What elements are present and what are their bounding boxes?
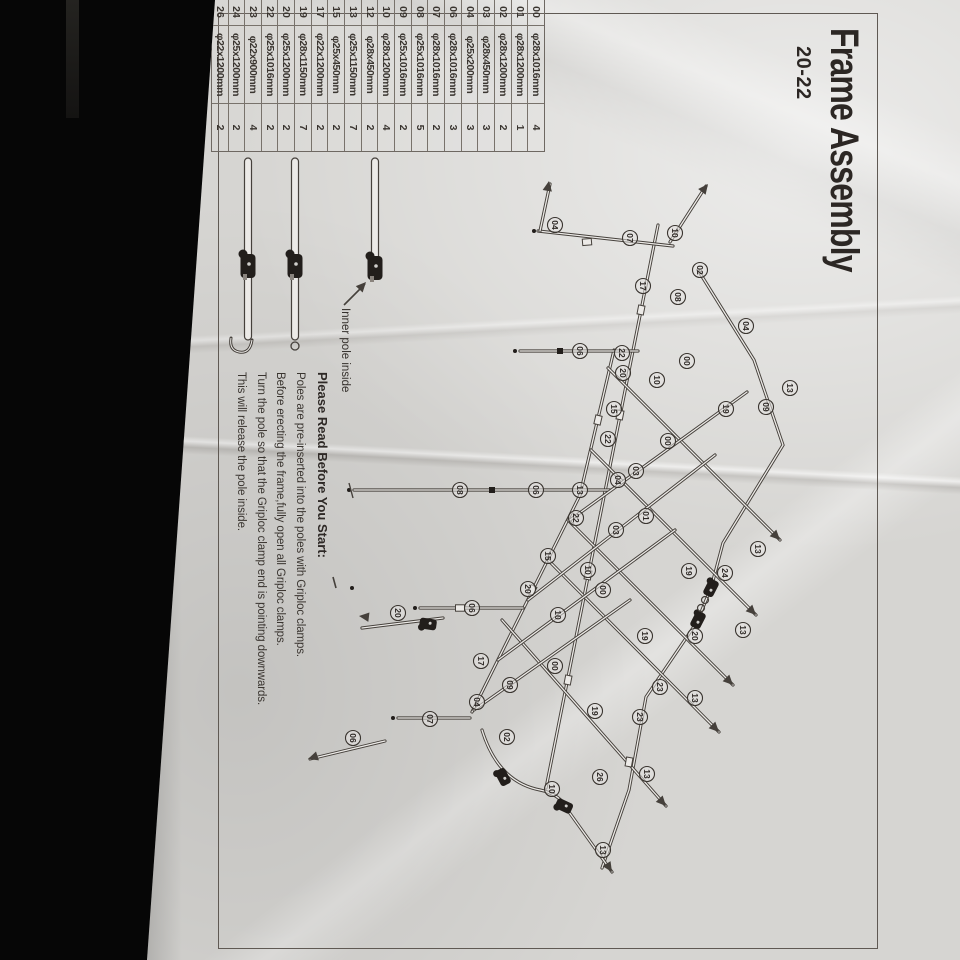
legend-pole-with-griploc-clamp-hook xyxy=(231,158,256,352)
diagram-part-label: 20 xyxy=(616,366,631,381)
diagram-part-label: 04 xyxy=(611,473,626,488)
diagram-part-label: 00 xyxy=(548,659,563,674)
diagram-part-label: 10 xyxy=(545,782,560,797)
svg-text:13: 13 xyxy=(575,485,585,495)
svg-text:01: 01 xyxy=(641,511,651,521)
inner-pole-label: Inner pole inside xyxy=(339,308,351,392)
svg-text:06: 06 xyxy=(467,603,477,613)
diagram-part-label: 13 xyxy=(640,767,655,782)
diagram-part-label: 03 xyxy=(609,523,624,538)
diagram-part-label: 08 xyxy=(453,483,468,498)
svg-text:20: 20 xyxy=(393,608,403,618)
svg-text:17: 17 xyxy=(638,281,648,291)
diagram-part-label: 10 xyxy=(581,563,596,578)
diagram-part-label: 01 xyxy=(639,509,654,524)
diagram-part-label: 22 xyxy=(601,432,616,447)
diagram-part-label: 07 xyxy=(623,231,638,246)
diagram-part-label: 06 xyxy=(465,601,480,616)
diagram-part-label: 19 xyxy=(638,629,653,644)
svg-text:07: 07 xyxy=(625,233,635,243)
diagram-part-label: 20 xyxy=(391,606,406,621)
diagram-part-label: 09 xyxy=(503,678,518,693)
diagram-part-label: 22 xyxy=(569,511,584,526)
svg-text:06: 06 xyxy=(348,733,358,743)
legend-pole-with-griploc-clamp-ring xyxy=(286,158,303,350)
svg-text:19: 19 xyxy=(640,631,650,641)
svg-text:13: 13 xyxy=(690,693,700,703)
diagram-part-label: 13 xyxy=(783,381,798,396)
diagram-part-label: 00 xyxy=(661,434,676,449)
svg-text:24: 24 xyxy=(720,568,730,578)
diagram-part-label: 02 xyxy=(500,730,515,745)
griploc-clamp-icon xyxy=(286,250,303,281)
griploc-clamp-icon xyxy=(239,250,256,281)
diagram-part-label: 10 xyxy=(650,373,665,388)
diagram-part-label: 06 xyxy=(529,483,544,498)
svg-text:13: 13 xyxy=(598,845,608,855)
svg-text:00: 00 xyxy=(550,661,560,671)
svg-text:10: 10 xyxy=(553,610,563,620)
diagram-part-label: 06 xyxy=(573,344,588,359)
svg-text:10: 10 xyxy=(583,565,593,575)
svg-text:15: 15 xyxy=(609,404,619,414)
svg-text:13: 13 xyxy=(785,383,795,393)
svg-text:04: 04 xyxy=(550,220,560,230)
diagram-part-label: 19 xyxy=(682,564,697,579)
svg-text:02: 02 xyxy=(502,732,512,742)
svg-text:06: 06 xyxy=(531,485,541,495)
diagram-part-label: 00 xyxy=(680,354,695,369)
diagram-part-label: 13 xyxy=(751,542,766,557)
diagram-part-label: 10 xyxy=(551,608,566,623)
svg-text:20: 20 xyxy=(690,631,700,641)
instruction-line: Turn the pole so that the Griploc clamp … xyxy=(255,372,267,705)
diagram-part-label: 15 xyxy=(541,549,556,564)
svg-text:22: 22 xyxy=(617,348,627,358)
diagram-part-label: 08 xyxy=(671,290,686,305)
diagram-part-label: 19 xyxy=(719,402,734,417)
diagram-part-label: 13 xyxy=(573,483,588,498)
diagram-part-label: 26 xyxy=(593,770,608,785)
svg-text:08: 08 xyxy=(455,485,465,495)
background-artifact xyxy=(66,0,79,118)
svg-text:17: 17 xyxy=(476,656,486,666)
diagram-part-label: 23 xyxy=(633,710,648,725)
diagram-part-label: 24 xyxy=(718,566,733,581)
instruction-line: This will release the pole inside. xyxy=(236,372,248,705)
diagram-part-label: 04 xyxy=(548,218,563,233)
diagram-part-label: 09 xyxy=(759,400,774,415)
svg-text:00: 00 xyxy=(682,356,692,366)
diagram-part-label: 10 xyxy=(668,226,683,241)
svg-text:10: 10 xyxy=(547,784,557,794)
diagram-part-label: 20 xyxy=(688,629,703,644)
svg-text:13: 13 xyxy=(642,769,652,779)
instruction-line: Poles are pre-inserted into the poles wi… xyxy=(294,372,306,705)
diagram-part-label: 02 xyxy=(693,263,708,278)
diagram-part-label: 06 xyxy=(346,731,361,746)
svg-text:20: 20 xyxy=(618,368,628,378)
diagram-part-label: 04 xyxy=(739,319,754,334)
svg-text:09: 09 xyxy=(505,680,515,690)
manual-page: Frame Assembly 20-22 00φ28x1016mm401φ28x… xyxy=(215,0,960,960)
svg-text:26: 26 xyxy=(595,772,605,782)
svg-text:23: 23 xyxy=(655,682,665,692)
svg-text:10: 10 xyxy=(670,228,680,238)
svg-text:04: 04 xyxy=(472,697,482,707)
svg-text:23: 23 xyxy=(635,712,645,722)
svg-text:15: 15 xyxy=(543,551,553,561)
instructions-heading: Please Read Before You Start: xyxy=(315,372,330,705)
svg-text:07: 07 xyxy=(425,714,435,724)
svg-text:08: 08 xyxy=(673,292,683,302)
manual-sheet-photo: Frame Assembly 20-22 00φ28x1016mm401φ28x… xyxy=(140,0,960,960)
diagram-part-label: 00 xyxy=(596,583,611,598)
svg-text:06: 06 xyxy=(575,346,585,356)
svg-text:19: 19 xyxy=(590,706,600,716)
svg-text:13: 13 xyxy=(753,544,763,554)
svg-text:03: 03 xyxy=(631,466,641,476)
instruction-line: Before erecting the frame,fully open all… xyxy=(275,372,287,705)
diagram-part-label: 13 xyxy=(688,691,703,706)
svg-text:19: 19 xyxy=(721,404,731,414)
svg-text:10: 10 xyxy=(652,375,662,385)
svg-text:19: 19 xyxy=(684,566,694,576)
svg-text:02: 02 xyxy=(695,265,705,275)
diagram-part-label: 22 xyxy=(615,346,630,361)
svg-text:22: 22 xyxy=(603,434,613,444)
diagram-part-label: 15 xyxy=(607,402,622,417)
diagram-part-label: 13 xyxy=(596,843,611,858)
svg-text:04: 04 xyxy=(613,475,623,485)
diagram-part-label: 03 xyxy=(629,464,644,479)
diagram-part-label: 13 xyxy=(736,623,751,638)
svg-text:13: 13 xyxy=(738,625,748,635)
diagram-part-label: 17 xyxy=(636,279,651,294)
diagram-part-label: 19 xyxy=(588,704,603,719)
diagram-part-label: 17 xyxy=(474,654,489,669)
svg-text:22: 22 xyxy=(571,513,581,523)
griploc-clamp-icon xyxy=(366,252,383,283)
diagram-part-label: 20 xyxy=(521,582,536,597)
legend-pole-with-griploc-clamp xyxy=(366,158,383,282)
diagram-part-label: 23 xyxy=(653,680,668,695)
svg-text:04: 04 xyxy=(741,321,751,331)
diagram-part-label: 07 xyxy=(423,712,438,727)
svg-text:00: 00 xyxy=(598,585,608,595)
svg-text:00: 00 xyxy=(663,436,673,446)
diagram-part-label: 04 xyxy=(470,695,485,710)
svg-text:03: 03 xyxy=(611,525,621,535)
instructions-block: Please Read Before You Start: Poles are … xyxy=(228,372,330,705)
svg-text:09: 09 xyxy=(761,402,771,412)
svg-text:20: 20 xyxy=(523,584,533,594)
